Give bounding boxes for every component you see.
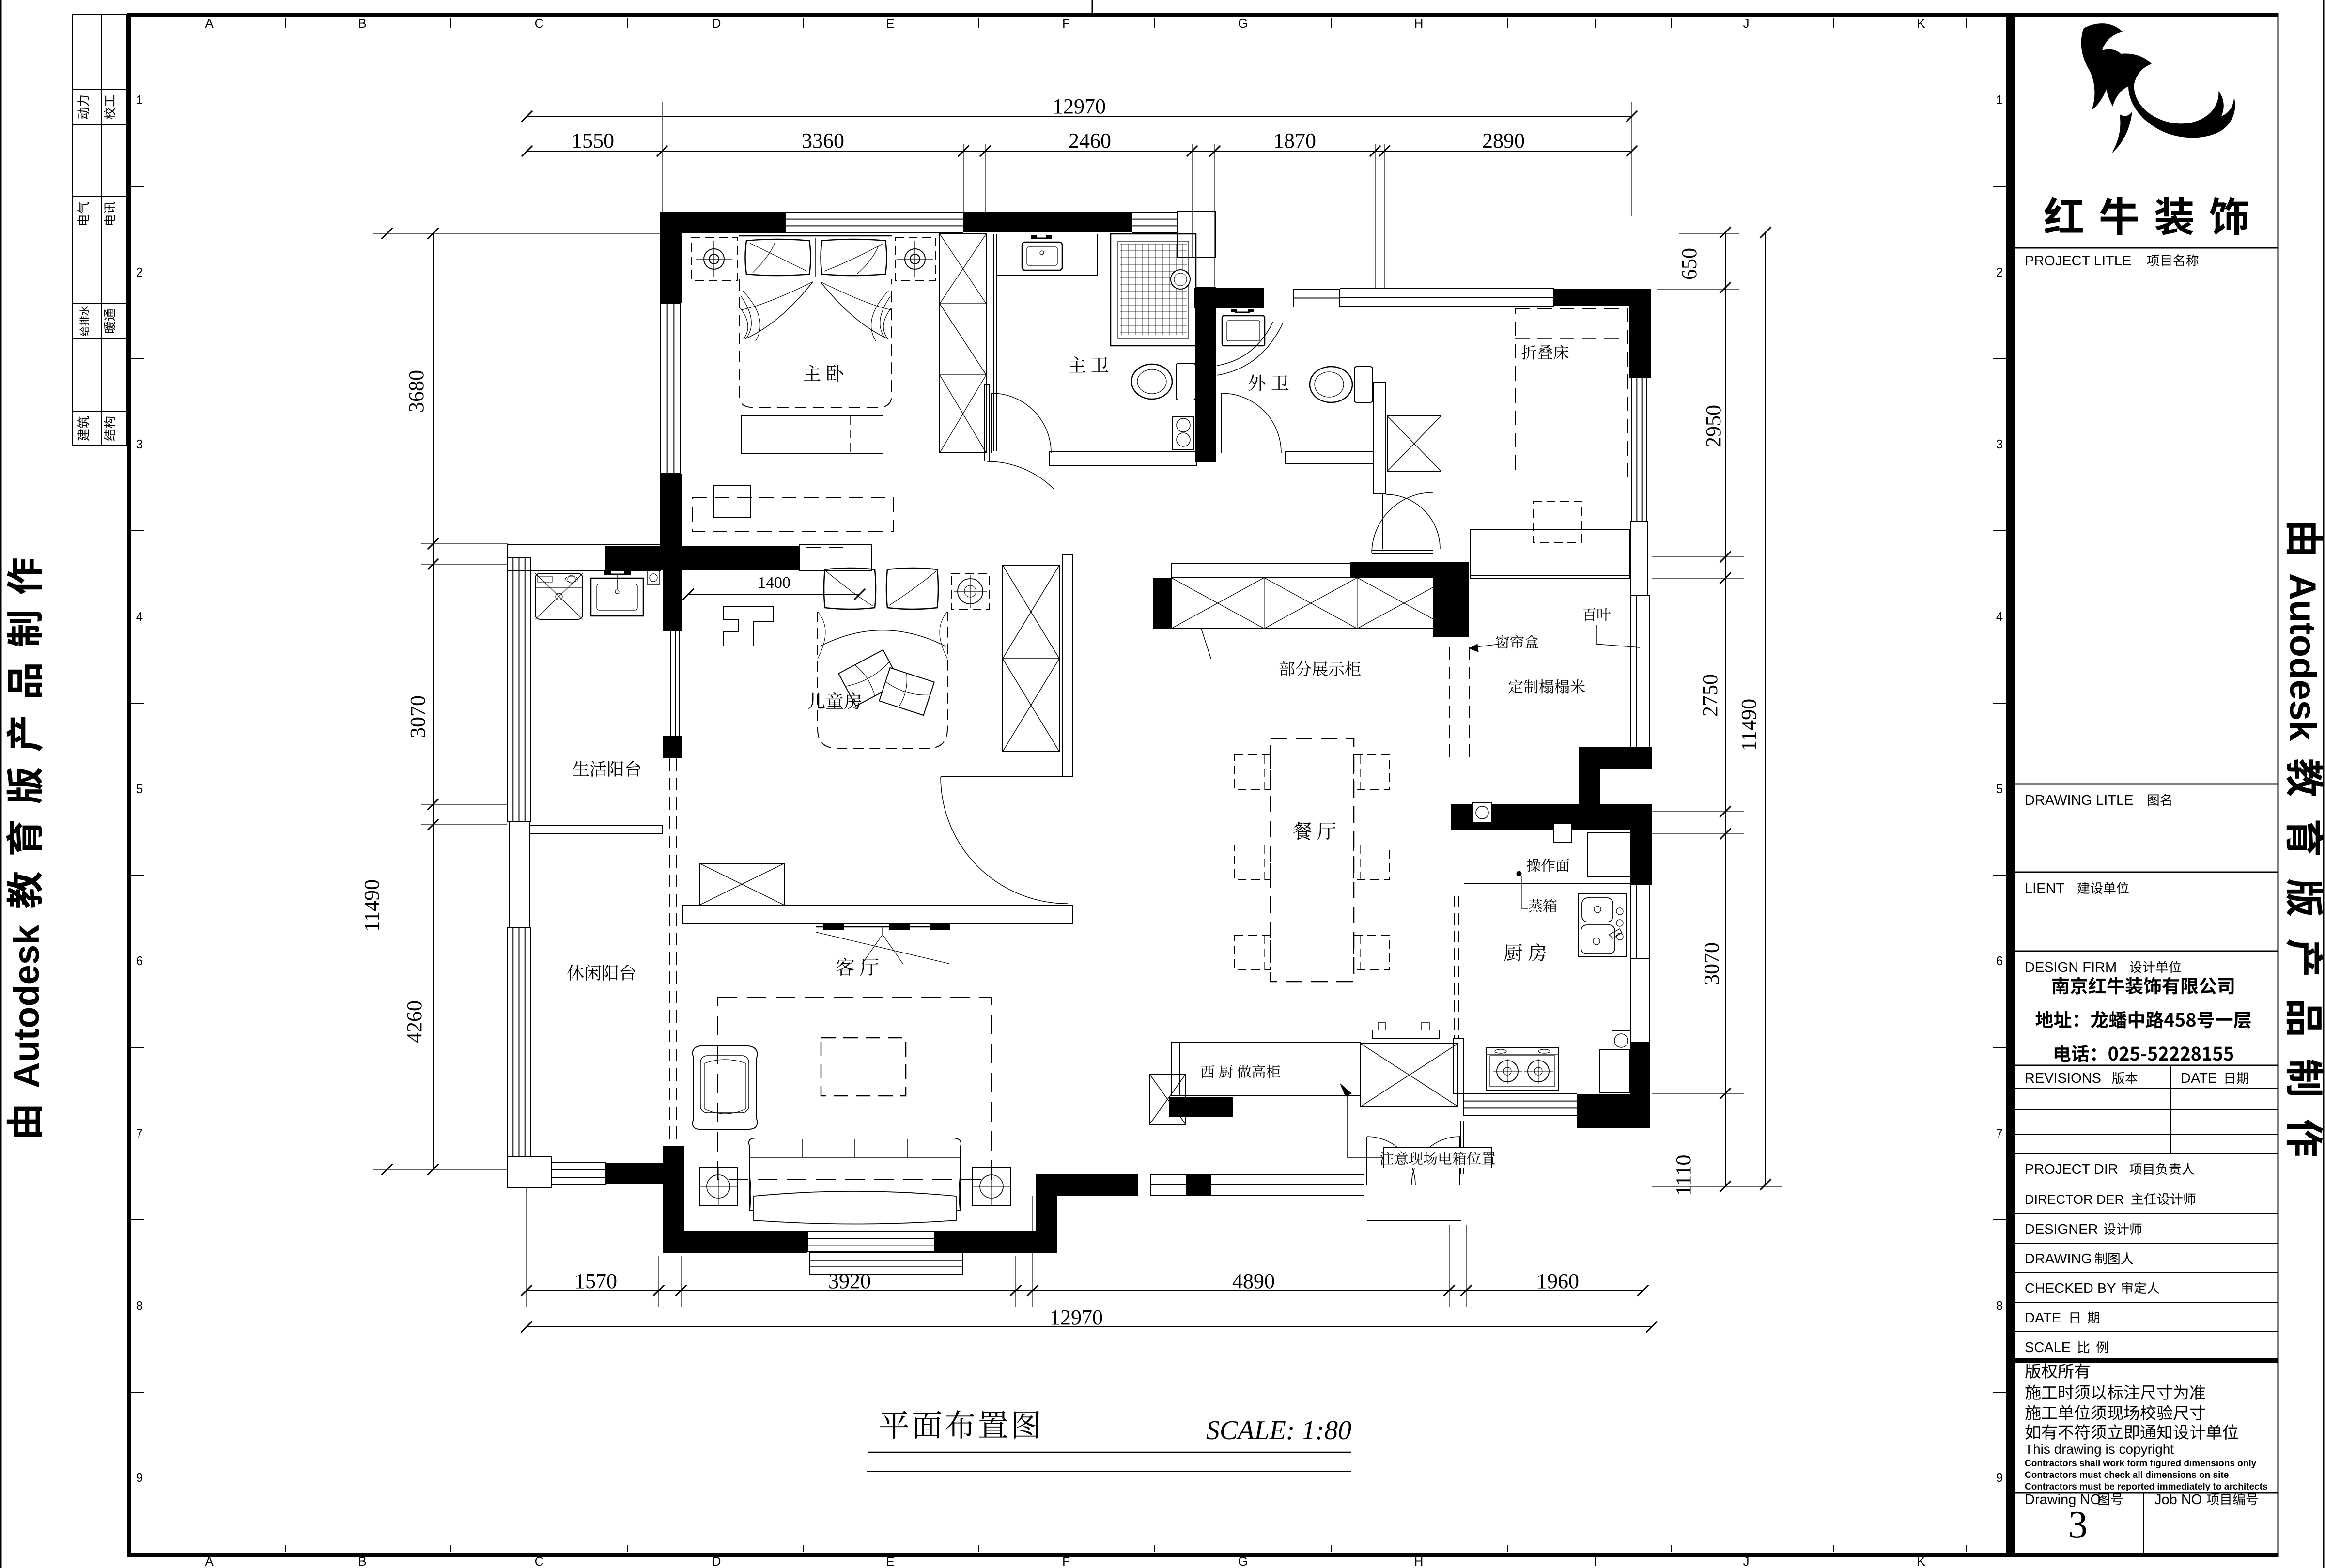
svg-text:9: 9 (1996, 1470, 2003, 1485)
svg-text:H: H (1414, 1554, 1424, 1568)
svg-text:DESIGNER: DESIGNER (2025, 1222, 2098, 1237)
svg-text:B: B (358, 16, 366, 31)
svg-text:1400: 1400 (758, 574, 790, 592)
svg-text:Contractors must be reported i: Contractors must be reported immediately… (2025, 1482, 2268, 1492)
svg-text:F: F (1062, 16, 1070, 31)
svg-text:J: J (1743, 1554, 1750, 1568)
svg-text:K: K (1917, 16, 1925, 31)
svg-text:DRAWING LITLE: DRAWING LITLE (2025, 793, 2134, 808)
svg-text:1870: 1870 (1273, 129, 1316, 153)
svg-text:11490: 11490 (360, 879, 384, 932)
svg-text:4890: 4890 (1232, 1269, 1275, 1293)
svg-text:Contractors shall work form fi: Contractors shall work form figured dime… (2025, 1459, 2257, 1469)
svg-text:DATE: DATE (2181, 1071, 2217, 1086)
svg-text:DIRECTOR DER: DIRECTOR DER (2025, 1192, 2124, 1207)
svg-text:Drawing NO: Drawing NO (2025, 1492, 2101, 1507)
svg-text:B: B (358, 1554, 366, 1568)
svg-text:2950: 2950 (1702, 405, 1725, 447)
svg-text:3: 3 (1996, 437, 2003, 451)
svg-text:DATE: DATE (2025, 1310, 2061, 1326)
svg-text:1: 1 (136, 92, 143, 107)
svg-text:LIENT: LIENT (2025, 881, 2064, 896)
svg-text:C: C (535, 16, 544, 31)
svg-text:A: A (205, 1554, 214, 1568)
svg-text:4: 4 (1996, 609, 2003, 624)
svg-text:1960: 1960 (1536, 1269, 1579, 1293)
svg-text:A: A (205, 16, 214, 31)
svg-text:D: D (712, 1554, 721, 1568)
svg-text:DRAWING: DRAWING (2025, 1251, 2092, 1267)
svg-text:12970: 12970 (1053, 94, 1106, 118)
svg-text:1570: 1570 (574, 1269, 617, 1293)
svg-text:PROJECT LITLE: PROJECT LITLE (2025, 253, 2131, 269)
svg-text:7: 7 (1996, 1126, 2003, 1140)
svg-text:G: G (1238, 16, 1248, 31)
svg-text:SCALE: SCALE (2025, 1340, 2071, 1355)
svg-text:REVISIONS: REVISIONS (2025, 1071, 2101, 1086)
svg-text:5: 5 (136, 782, 143, 796)
svg-text:3: 3 (2068, 1504, 2088, 1546)
svg-text:5: 5 (1996, 782, 2003, 796)
svg-text:12970: 12970 (1050, 1306, 1103, 1329)
svg-text:3070: 3070 (406, 695, 430, 738)
svg-text:H: H (1414, 16, 1424, 31)
svg-text:DESIGN FIRM: DESIGN FIRM (2025, 960, 2117, 975)
svg-text:E: E (886, 16, 894, 31)
svg-text:J: J (1743, 16, 1750, 31)
svg-text:1550: 1550 (572, 129, 614, 153)
svg-text:4260: 4260 (403, 1000, 426, 1043)
svg-text:7: 7 (136, 1126, 143, 1140)
svg-text:3360: 3360 (802, 129, 844, 153)
svg-text:6: 6 (136, 953, 143, 968)
svg-text:1110: 1110 (1672, 1155, 1695, 1196)
svg-text:4: 4 (136, 609, 143, 624)
svg-text:1: 1 (1996, 92, 2003, 107)
svg-text:8: 8 (1996, 1298, 2003, 1313)
svg-text:Contractors must check all dim: Contractors must check all dimensions on… (2025, 1470, 2229, 1480)
svg-text:9: 9 (136, 1470, 143, 1485)
svg-text:3680: 3680 (404, 370, 428, 413)
svg-text:2750: 2750 (1698, 674, 1722, 717)
svg-text:PROJECT DIR: PROJECT DIR (2025, 1162, 2118, 1177)
svg-text:2: 2 (136, 265, 143, 279)
svg-text:G: G (1238, 1554, 1248, 1568)
svg-text:3: 3 (136, 437, 143, 451)
svg-text:Autodesk: Autodesk (6, 924, 46, 1088)
svg-text:D: D (712, 16, 721, 31)
svg-text:3920: 3920 (828, 1269, 871, 1293)
svg-text:2460: 2460 (1069, 129, 1111, 153)
svg-text:3070: 3070 (1700, 942, 1723, 985)
svg-text:8: 8 (136, 1298, 143, 1313)
svg-text:650: 650 (1677, 248, 1701, 280)
svg-text:SCALE: 1:80: SCALE: 1:80 (1206, 1415, 1351, 1445)
svg-text:I: I (1594, 16, 1597, 31)
svg-text:E: E (886, 1554, 894, 1568)
svg-text:C: C (535, 1554, 544, 1568)
svg-text:Job NO: Job NO (2154, 1492, 2202, 1507)
svg-text:11490: 11490 (1737, 699, 1761, 751)
svg-text:CHECKED BY: CHECKED BY (2025, 1281, 2116, 1296)
svg-text:Autodesk: Autodesk (2282, 573, 2323, 741)
svg-text:K: K (1917, 1554, 1925, 1568)
svg-text:2: 2 (1996, 265, 2003, 279)
svg-text:6: 6 (1996, 953, 2003, 968)
svg-text:F: F (1062, 1554, 1070, 1568)
svg-text:This drawing is copyright: This drawing is copyright (2025, 1442, 2174, 1457)
svg-text:I: I (1594, 1554, 1597, 1568)
svg-text:2890: 2890 (1482, 129, 1525, 153)
